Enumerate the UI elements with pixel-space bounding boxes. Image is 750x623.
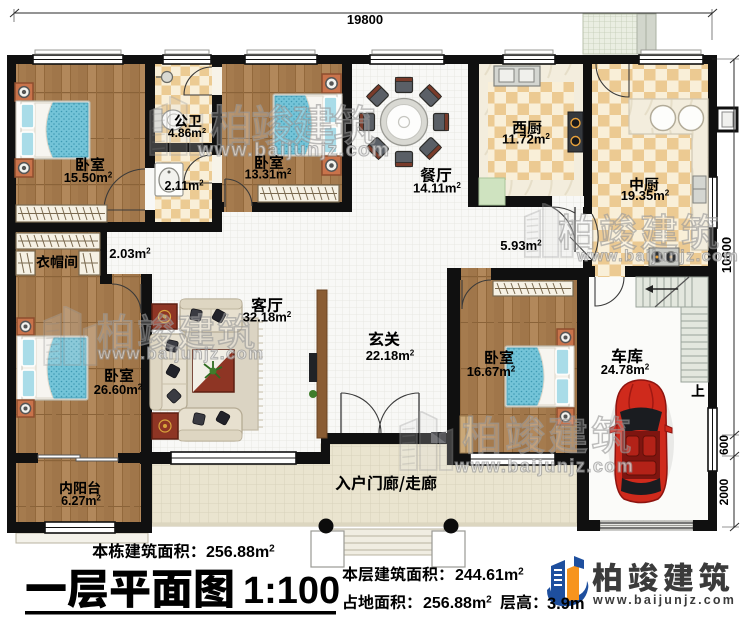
svg-text:3.9m: 3.9m: [547, 595, 585, 613]
svg-text:256.88m2: 256.88m2: [206, 544, 275, 562]
svg-text:6.27m2: 6.27m2: [61, 494, 101, 508]
svg-text:www.baijunjz.com: www.baijunjz.com: [97, 345, 264, 363]
svg-text:256.88m2: 256.88m2: [423, 595, 492, 613]
svg-text:14.11m2: 14.11m2: [413, 181, 461, 196]
svg-text:www.baijunjz.com: www.baijunjz.com: [592, 593, 736, 607]
svg-text:4.86m2: 4.86m2: [168, 126, 206, 140]
svg-text:www.baijunjz.com: www.baijunjz.com: [454, 456, 634, 476]
svg-text:19.35m2: 19.35m2: [621, 188, 670, 203]
svg-text:32.18m2: 32.18m2: [243, 310, 292, 325]
svg-text:www.baijunjz.com: www.baijunjz.com: [197, 139, 390, 161]
svg-text:600: 600: [717, 435, 731, 455]
svg-text:5.93m2: 5.93m2: [500, 238, 542, 253]
svg-text:2.11m2: 2.11m2: [164, 179, 204, 193]
svg-text:11.72m2: 11.72m2: [502, 132, 550, 147]
svg-text:19800: 19800: [347, 12, 383, 27]
svg-text:2.03m2: 2.03m2: [109, 246, 151, 261]
svg-text:26.60m2: 26.60m2: [94, 382, 143, 397]
svg-text:13.31m2: 13.31m2: [245, 167, 292, 181]
svg-text:2000: 2000: [717, 478, 731, 505]
svg-text:244.61m2: 244.61m2: [455, 567, 524, 585]
svg-text:16.67m2: 16.67m2: [467, 364, 516, 379]
svg-text:15.50m2: 15.50m2: [64, 170, 113, 185]
svg-text:22.18m2: 22.18m2: [366, 348, 415, 363]
svg-text:1:100: 1:100: [243, 570, 340, 612]
svg-text:www.baijunjz.com: www.baijunjz.com: [576, 248, 739, 265]
svg-text:24.78m2: 24.78m2: [601, 362, 650, 377]
